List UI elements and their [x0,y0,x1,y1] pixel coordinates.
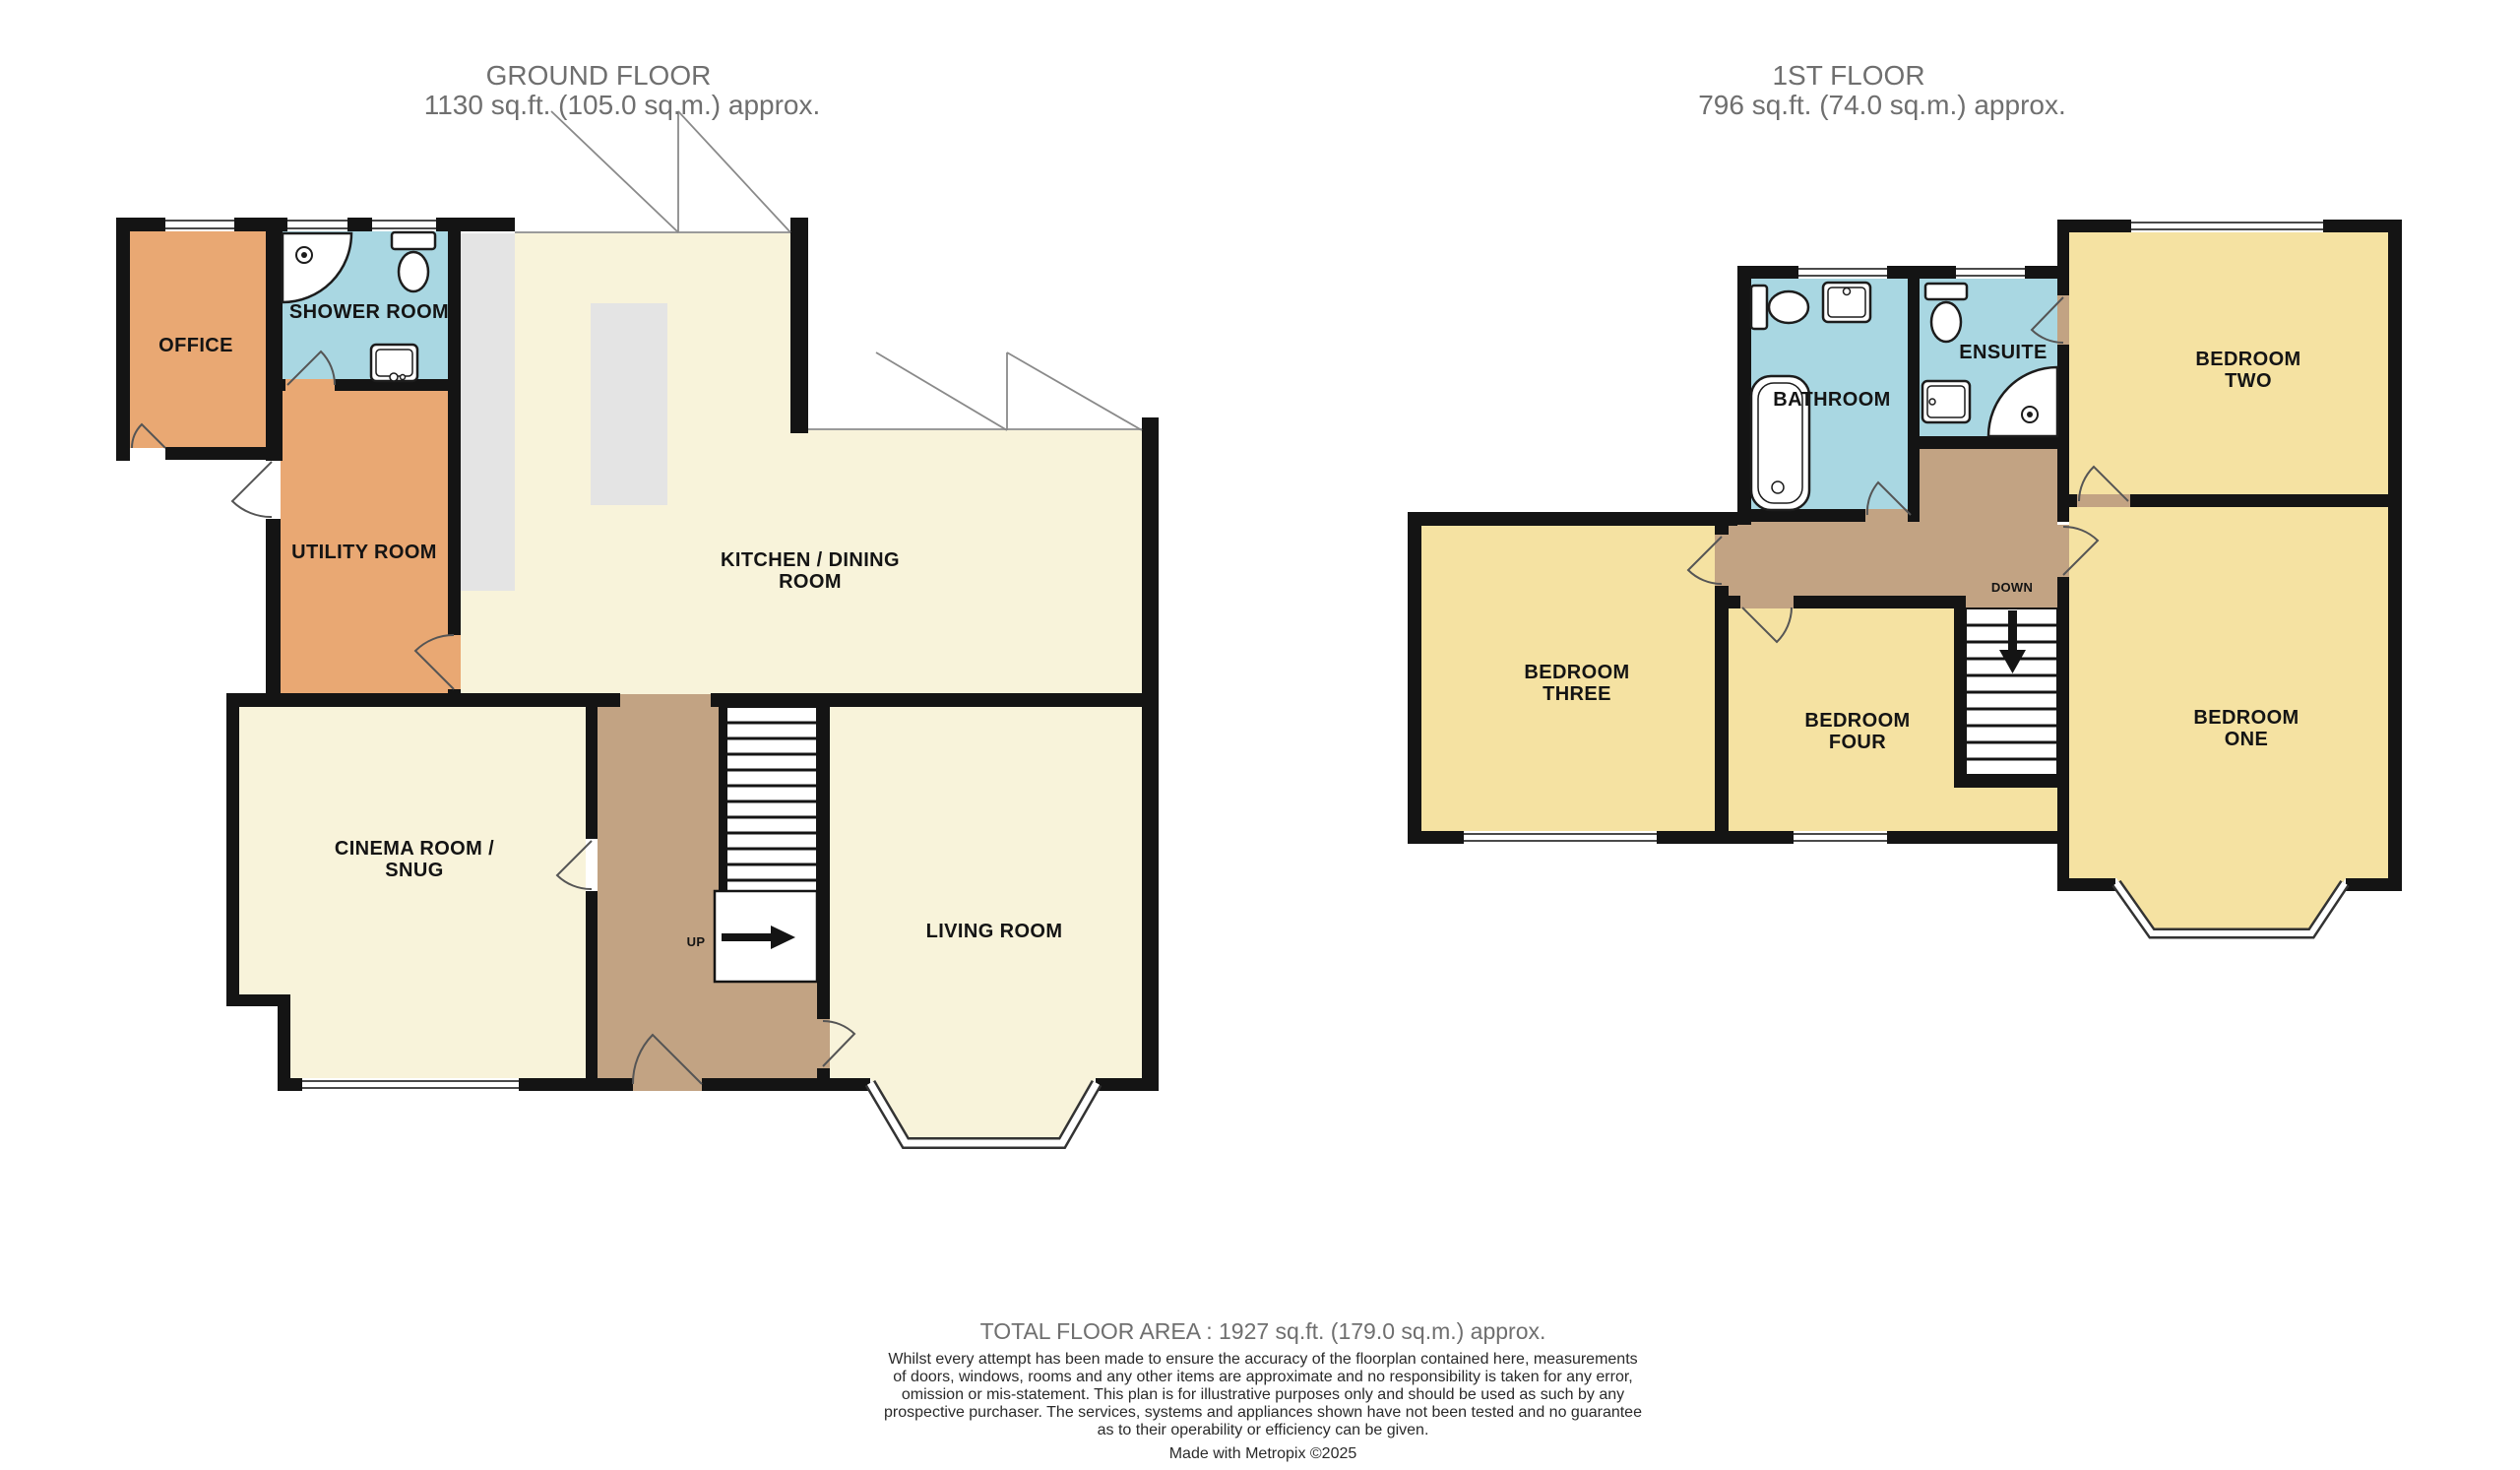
room-living-room-floor [830,706,1142,1078]
floor-headers: GROUND FLOOR 1130 sq.ft. (105.0 sq.m.) a… [424,60,2066,120]
room-label-bedroom-one-2: ONE [2225,729,2269,750]
stairs-up-label: UP [687,934,706,949]
wall-segment [2346,878,2388,891]
glazing-zigzag [551,111,790,232]
room-cinema-snug-floor [239,707,586,1078]
wall-segment [586,891,598,1078]
first-floor-plan: BATHROOM ENSUITE BEDROOM TWO BEDROOM THR… [1408,220,2402,933]
wall-segment [1737,266,1751,525]
room-label-bathroom: BATHROOM [1773,389,1890,411]
door-arc-side-entrance [232,462,272,517]
door-gap-tab [1740,596,1794,608]
total-floor-area: TOTAL FLOOR AREA : 1927 sq.ft. (179.0 sq… [980,1318,1546,1344]
wall-segment [266,519,281,707]
room-label-bedroom-three: BEDROOM [1524,662,1629,683]
window [1798,266,1887,279]
room-label-kitchen-dining: KITCHEN / DINING [721,549,900,571]
wall-segment [1657,831,1794,844]
window [372,218,436,231]
wall-segment [2388,220,2402,891]
wall-segment [1408,831,1464,844]
disclaimer: Whilst every attempt has been made to en… [884,1351,1642,1462]
window [1956,266,2025,279]
window [1794,831,1887,844]
wall-segment [1729,596,1740,608]
window [165,218,234,231]
wall-segment [2069,878,2115,891]
room-label-living-room: LIVING ROOM [926,921,1063,942]
disclaimer-line: prospective purchaser. The services, sys… [884,1404,1642,1421]
kitchen-counter [461,233,515,591]
ground-floor-area: 1130 sq.ft. (105.0 sq.m.) approx. [424,90,821,120]
wall-segment [165,447,279,460]
wall-segment [116,447,130,460]
wall-segment [1954,596,1966,788]
wall-segment [448,218,461,635]
floorplan-canvas: OFFICE SHOWER ROOM UTILITY ROOM KITCHEN … [0,0,2520,1470]
window [287,218,347,231]
wall-segment [1908,266,1920,522]
wall-segment [2057,345,2069,522]
first-floor-area: 796 sq.ft. (74.0 sq.m.) approx. [1698,90,2066,120]
sink-fixture [1922,381,1970,422]
room-label-bedroom-four-2: FOUR [1829,732,1886,753]
wall-segment [2057,220,2131,232]
kitchen-island [591,303,667,505]
landing-floor [1729,522,2057,608]
wall-segment [711,693,1159,707]
wall-segment [1913,509,1920,522]
wall-segment [519,1078,633,1091]
disclaimer-line: of doors, windows, rooms and any other i… [893,1369,1632,1385]
wall-segment [1408,512,1421,844]
wall-segment [226,693,239,1006]
ground-stairs [715,694,817,982]
room-label-bedroom-two-2: TWO [2225,370,2272,392]
wall-segment [1408,512,1737,526]
footer: TOTAL FLOOR AREA : 1927 sq.ft. (179.0 sq… [884,1318,1642,1462]
wall-segment [278,994,290,1091]
first-floor-rooms [1421,232,2388,931]
metropix-credit: Made with Metropix ©2025 [1169,1445,1357,1462]
wall-segment [1794,596,1966,608]
wall-segment [1142,417,1159,1091]
wall-segment [1737,509,1865,522]
first-floor-title: 1ST FLOOR [1772,60,1924,91]
stair-wall [719,694,726,891]
door-gap-tab [2057,525,2069,577]
room-label-bedroom-four: BEDROOM [1804,710,1910,732]
door-gap-tab [448,635,461,689]
room-label-ensuite: ENSUITE [1959,342,2047,363]
wall-segment [279,379,285,391]
disclaimer-line: omission or mis-statement. This plan is … [902,1386,1624,1403]
room-label-office: OFFICE [158,335,233,356]
wall-segment [1920,436,2069,449]
wall-segment [586,694,598,839]
wall-segment [1887,266,1956,279]
window [302,1078,519,1091]
room-bedroom-one-floor [2069,507,2388,878]
stairs-down-label: DOWN [1991,580,2033,595]
wall-segment [1096,1078,1159,1091]
room-label-bedroom-three-2: THREE [1543,683,1611,705]
wall-segment [817,694,830,1019]
ground-floor-plan: OFFICE SHOWER ROOM UTILITY ROOM KITCHEN … [116,111,1159,1143]
sink-fixture [371,345,417,381]
first-floor-stairs [1966,608,2057,775]
wall-segment [1715,586,1729,831]
window [2131,220,2323,232]
sink-fixture [1823,283,1870,322]
wall-segment [2057,577,2069,891]
room-label-kitchen-dining-2: ROOM [779,571,842,593]
wall-segment [790,218,808,433]
room-label-bedroom-two: BEDROOM [2195,349,2300,370]
room-label-cinema-snug-2: SNUG [385,860,443,881]
window [1464,831,1657,844]
wall-segment [1715,525,1729,535]
landing-floor [1920,449,2057,522]
wall-segment [2130,494,2388,507]
room-label-shower-room: SHOWER ROOM [289,301,449,323]
wall-segment [226,693,620,707]
disclaimer-line: as to their operability or efficiency ca… [1098,1422,1429,1438]
wall-segment [1737,266,1798,279]
ground-floor-title: GROUND FLOOR [486,60,712,91]
wall-segment [266,218,283,461]
wall-segment [702,1078,870,1091]
wall-segment [2069,494,2077,507]
wall-segment [116,218,130,461]
room-label-cinema-snug: CINEMA ROOM / [335,838,494,860]
glazing-zigzag [876,352,1142,430]
wall-segment [1954,775,2069,788]
wall-segment [278,1078,302,1091]
room-label-utility-room: UTILITY ROOM [291,542,437,563]
wall-segment [1887,831,2069,844]
disclaimer-line: Whilst every attempt has been made to en… [888,1351,1637,1368]
floorplan-page: OFFICE SHOWER ROOM UTILITY ROOM KITCHEN … [0,0,2520,1470]
wall-segment [817,1068,830,1091]
room-label-bedroom-one: BEDROOM [2193,707,2299,729]
